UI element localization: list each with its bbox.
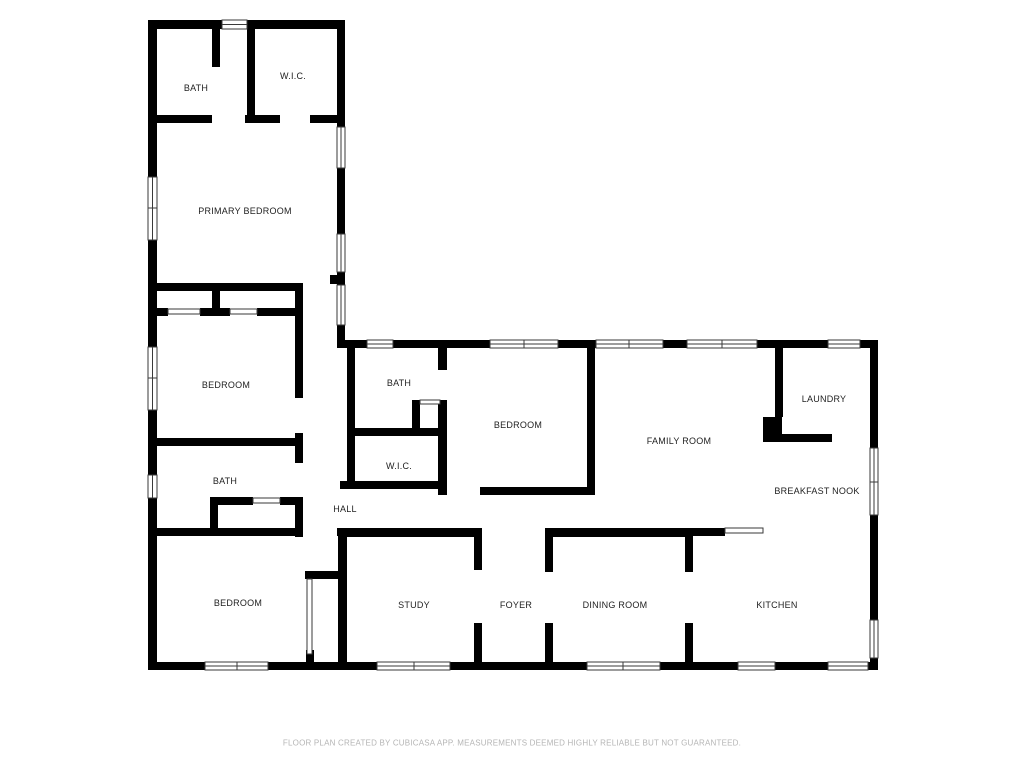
room-label-bath-upper: BATH: [184, 83, 208, 93]
room-label-kitchen: KITCHEN: [756, 600, 797, 610]
room-label-family-room: FAMILY ROOM: [647, 436, 711, 446]
room-label-bedroom-lower: BEDROOM: [214, 598, 262, 608]
room-label-bedroom-left: BEDROOM: [202, 380, 250, 390]
room-label-bath-middle: BATH: [387, 378, 411, 388]
room-label-wic-upper: W.I.C.: [280, 71, 306, 81]
room-label-hall: HALL: [333, 504, 357, 514]
floorplan-canvas: BATH W.I.C. PRIMARY BEDROOM BEDROOM BATH…: [0, 0, 1024, 768]
room-label-primary-bedroom: PRIMARY BEDROOM: [198, 206, 291, 216]
room-label-laundry: LAUNDRY: [802, 394, 847, 404]
room-label-breakfast-nook: BREAKFAST NOOK: [774, 486, 859, 496]
footer-disclaimer: FLOOR PLAN CREATED BY CUBICASA APP. MEAS…: [283, 739, 741, 748]
room-label-bedroom-middle: BEDROOM: [494, 420, 542, 430]
room-label-wic-middle: W.I.C.: [386, 461, 412, 471]
room-label-dining-room: DINING ROOM: [583, 600, 648, 610]
room-label-foyer: FOYER: [500, 600, 532, 610]
room-label-bath-lower: BATH: [213, 476, 237, 486]
floorplan-drawing: [0, 0, 1024, 768]
room-label-study: STUDY: [398, 600, 430, 610]
